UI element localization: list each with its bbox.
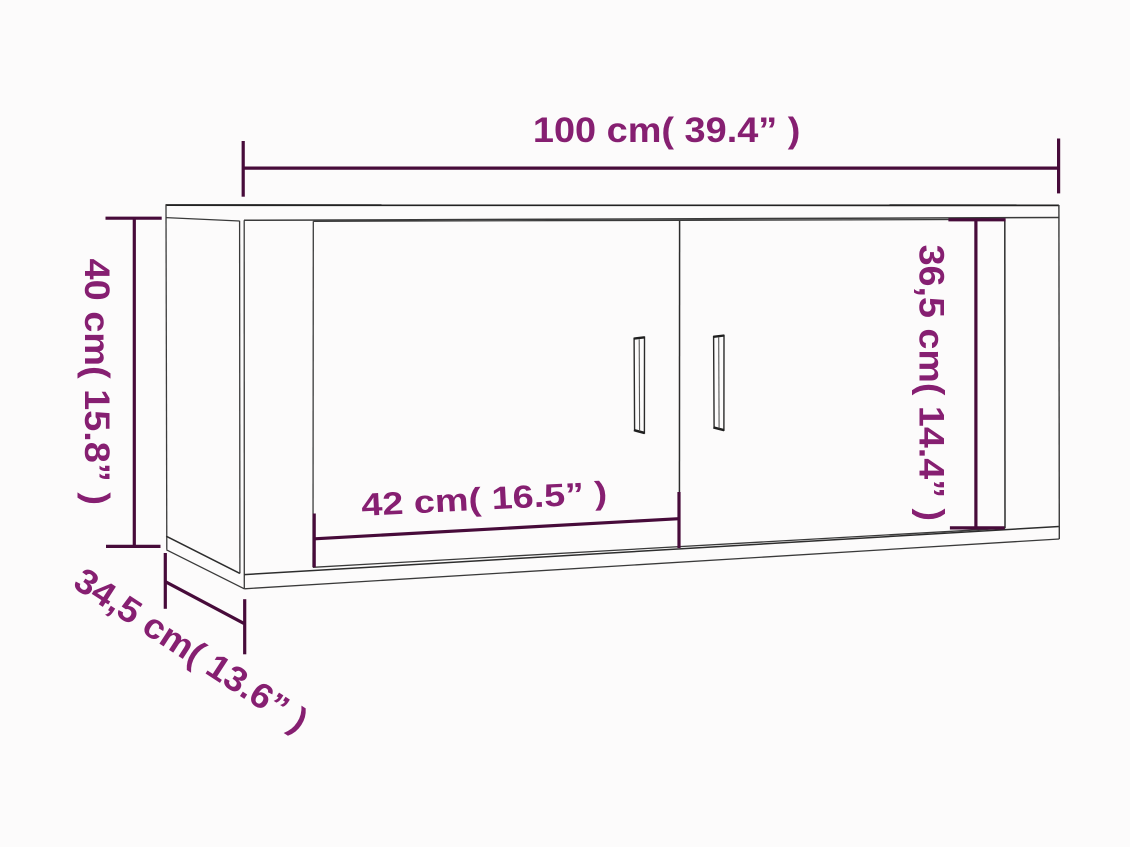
svg-text:100 cm( 39.4” ): 100 cm( 39.4” ) bbox=[533, 111, 801, 150]
svg-text:40 cm( 15.8” ): 40 cm( 15.8” ) bbox=[77, 259, 116, 506]
svg-text:36,5 cm( 14.4” ): 36,5 cm( 14.4” ) bbox=[912, 245, 951, 521]
